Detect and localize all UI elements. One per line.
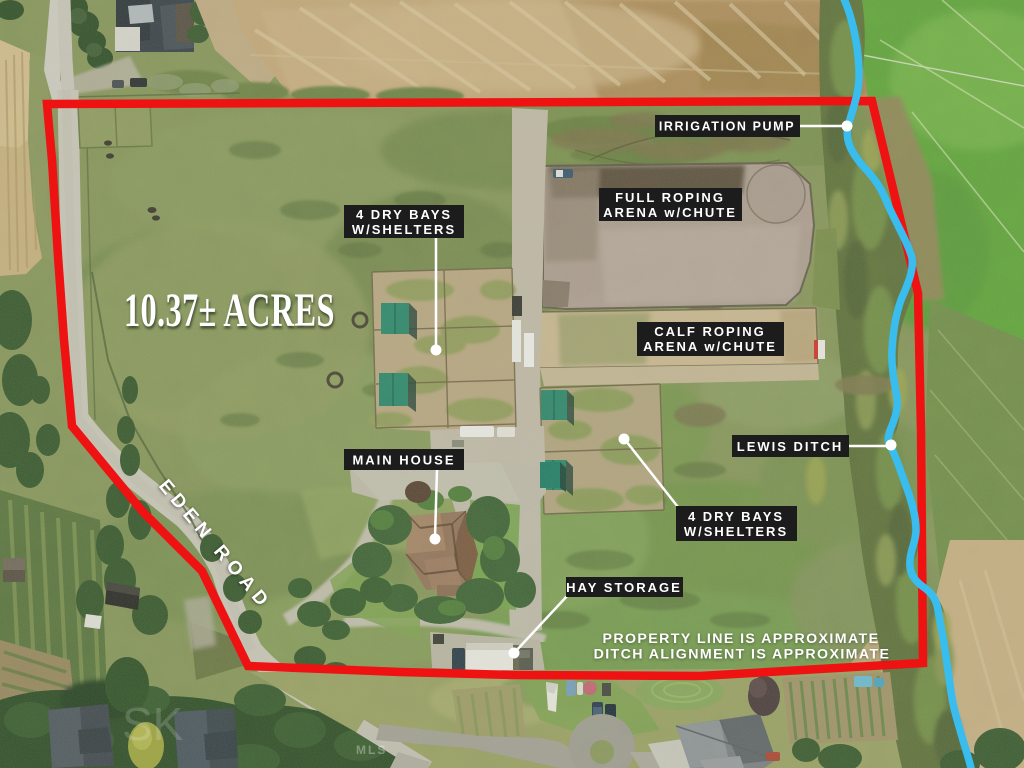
svg-text:10.37± ACRES: 10.37± ACRES bbox=[124, 284, 335, 337]
svg-text:SK: SK bbox=[122, 698, 184, 750]
svg-text:ARENA w/CHUTE: ARENA w/CHUTE bbox=[643, 339, 777, 354]
svg-text:MLS: MLS bbox=[356, 743, 387, 757]
svg-text:4 DRY BAYS: 4 DRY BAYS bbox=[688, 509, 784, 524]
svg-text:LEWIS DITCH: LEWIS DITCH bbox=[737, 439, 844, 454]
svg-text:MAIN HOUSE: MAIN HOUSE bbox=[352, 453, 455, 468]
svg-text:HAY STORAGE: HAY STORAGE bbox=[566, 580, 682, 595]
svg-text:ARENA w/CHUTE: ARENA w/CHUTE bbox=[603, 205, 737, 220]
svg-text:IRRIGATION PUMP: IRRIGATION PUMP bbox=[659, 120, 795, 134]
svg-text:FULL ROPING: FULL ROPING bbox=[615, 190, 725, 205]
svg-text:PROPERTY LINE IS APPROXIMATE: PROPERTY LINE IS APPROXIMATE bbox=[602, 631, 879, 647]
svg-text:DITCH ALIGNMENT IS APPROXIMATE: DITCH ALIGNMENT IS APPROXIMATE bbox=[594, 647, 891, 663]
svg-text:W/SHELTERS: W/SHELTERS bbox=[684, 524, 788, 539]
svg-text:W/SHELTERS: W/SHELTERS bbox=[352, 222, 456, 237]
svg-text:4 DRY BAYS: 4 DRY BAYS bbox=[356, 207, 452, 222]
svg-text:CALF ROPING: CALF ROPING bbox=[654, 324, 766, 339]
